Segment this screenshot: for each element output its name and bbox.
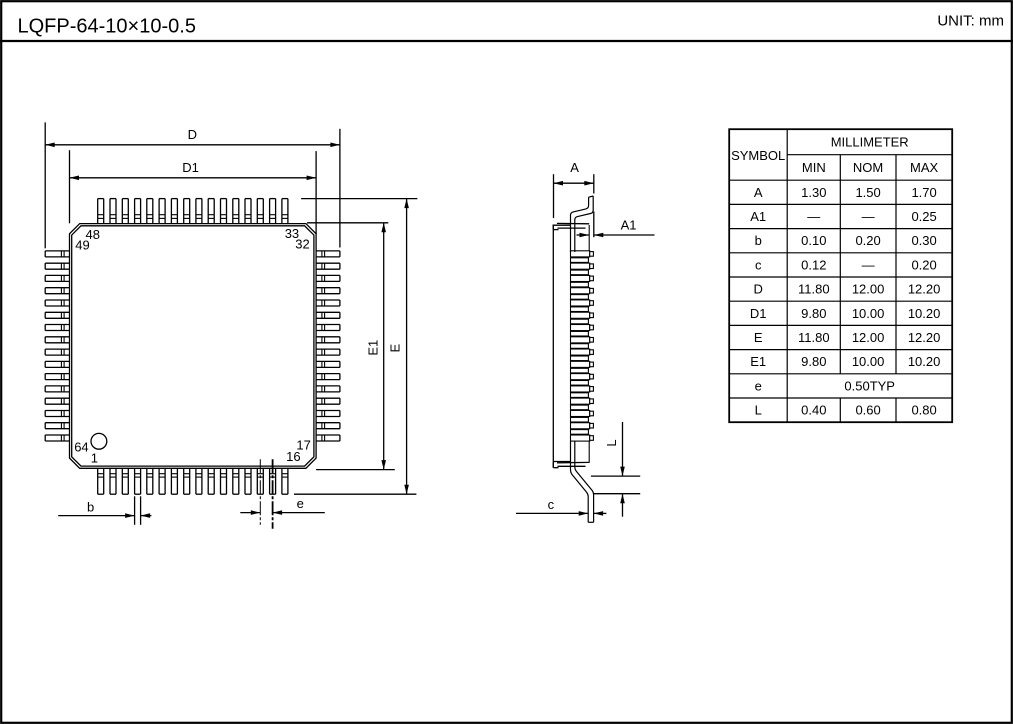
svg-text:0.60: 0.60 [855, 403, 880, 418]
svg-text:11.80: 11.80 [798, 282, 830, 297]
svg-text:b: b [755, 233, 762, 248]
svg-text:12.20: 12.20 [908, 282, 941, 297]
svg-text:0.30: 0.30 [911, 233, 936, 248]
svg-text:10.20: 10.20 [908, 306, 941, 321]
svg-text:LQFP-64-10×10-0.5: LQFP-64-10×10-0.5 [18, 16, 196, 38]
svg-text:1.70: 1.70 [911, 185, 936, 200]
svg-text:1.30: 1.30 [801, 185, 826, 200]
svg-text:1: 1 [91, 451, 98, 466]
svg-text:—: — [862, 209, 875, 224]
svg-text:10.00: 10.00 [852, 354, 885, 369]
svg-text:A: A [754, 185, 763, 200]
svg-text:10.20: 10.20 [908, 354, 941, 369]
svg-text:E: E [388, 344, 403, 353]
svg-text:32: 32 [295, 237, 309, 252]
svg-text:MIN: MIN [802, 160, 826, 175]
svg-text:SYMBOL: SYMBOL [731, 148, 785, 163]
svg-text:11.80: 11.80 [798, 330, 830, 345]
svg-text:49: 49 [75, 237, 89, 252]
svg-text:0.25: 0.25 [911, 209, 936, 224]
svg-text:0.10: 0.10 [801, 233, 826, 248]
svg-text:A1: A1 [621, 218, 637, 233]
svg-text:D1: D1 [182, 160, 199, 175]
svg-text:10.00: 10.00 [852, 306, 885, 321]
svg-text:A: A [570, 160, 579, 175]
svg-text:64: 64 [74, 439, 88, 454]
svg-text:9.80: 9.80 [801, 306, 826, 321]
svg-text:—: — [862, 257, 875, 272]
svg-text:—: — [807, 209, 820, 224]
svg-text:L: L [604, 439, 619, 446]
svg-text:D1: D1 [750, 306, 767, 321]
svg-text:12.00: 12.00 [852, 282, 885, 297]
svg-text:c: c [548, 497, 555, 512]
svg-text:E1: E1 [366, 340, 381, 356]
svg-text:0.80: 0.80 [911, 403, 936, 418]
svg-text:A1: A1 [750, 209, 766, 224]
svg-text:0.40: 0.40 [801, 403, 826, 418]
svg-text:12.00: 12.00 [852, 330, 885, 345]
svg-text:9.80: 9.80 [801, 354, 826, 369]
svg-text:e: e [297, 496, 304, 511]
svg-text:NOM: NOM [853, 160, 883, 175]
svg-text:D: D [188, 127, 197, 142]
svg-text:0.12: 0.12 [801, 257, 826, 272]
svg-text:UNIT: mm: UNIT: mm [937, 13, 1004, 30]
svg-text:L: L [755, 403, 762, 418]
svg-text:D: D [754, 282, 763, 297]
svg-text:E: E [754, 330, 763, 345]
svg-text:0.50TYP: 0.50TYP [844, 378, 895, 393]
svg-text:MILLIMETER: MILLIMETER [831, 134, 909, 149]
svg-text:0.20: 0.20 [911, 257, 936, 272]
svg-text:b: b [87, 499, 94, 514]
svg-text:c: c [755, 257, 762, 272]
svg-text:MAX: MAX [910, 160, 939, 175]
svg-text:0.20: 0.20 [855, 233, 880, 248]
svg-text:16: 16 [286, 449, 300, 464]
svg-text:E1: E1 [750, 354, 766, 369]
svg-text:12.20: 12.20 [908, 330, 941, 345]
svg-text:e: e [755, 378, 762, 393]
svg-text:1.50: 1.50 [855, 185, 880, 200]
